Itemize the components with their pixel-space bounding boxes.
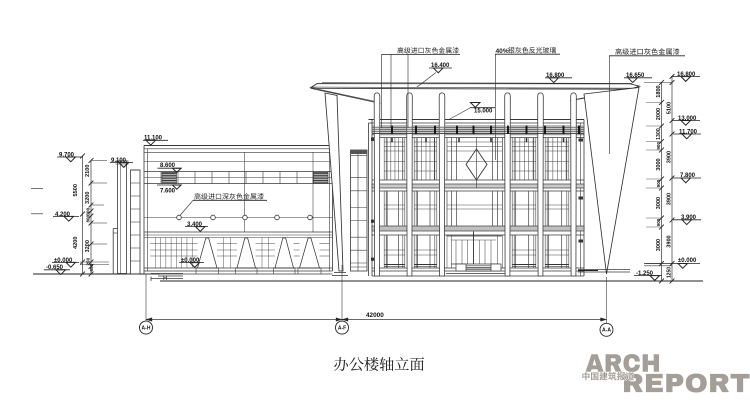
svg-text:1800: 1800 — [656, 85, 662, 97]
svg-text:3900: 3900 — [666, 235, 672, 247]
svg-text:A-F: A-F — [338, 326, 346, 332]
svg-text:3000: 3000 — [656, 158, 662, 170]
svg-text:300: 300 — [86, 207, 91, 215]
svg-text:7.600: 7.600 — [160, 188, 176, 194]
svg-text:42000: 42000 — [366, 312, 384, 319]
svg-text:4.200: 4.200 — [55, 212, 71, 218]
svg-text:3900: 3900 — [666, 193, 672, 205]
svg-text:3200: 3200 — [85, 240, 91, 252]
svg-text:15.000: 15.000 — [474, 108, 493, 114]
svg-text:3000: 3000 — [656, 239, 662, 251]
svg-text:A-A: A-A — [602, 328, 611, 334]
svg-text:1250: 1250 — [666, 267, 672, 278]
svg-text:3200: 3200 — [85, 192, 91, 204]
svg-text:900: 900 — [656, 218, 661, 226]
svg-text:5500: 5500 — [73, 184, 79, 196]
svg-text:2000: 2000 — [656, 108, 662, 120]
svg-text:5100: 5100 — [666, 102, 672, 114]
svg-text:900: 900 — [656, 179, 661, 187]
svg-text:800: 800 — [86, 214, 91, 222]
svg-text:650: 650 — [89, 263, 94, 271]
svg-text:2100: 2100 — [85, 165, 91, 177]
svg-text:3900: 3900 — [666, 151, 672, 163]
svg-text:A-H: A-H — [142, 326, 151, 332]
svg-text:3000: 3000 — [656, 197, 662, 209]
svg-text:900: 900 — [656, 142, 661, 150]
svg-text:40%: 40% — [496, 48, 509, 55]
svg-text:1300: 1300 — [656, 128, 662, 140]
svg-text:4200: 4200 — [73, 237, 79, 249]
svg-text:H: H — [163, 276, 167, 282]
